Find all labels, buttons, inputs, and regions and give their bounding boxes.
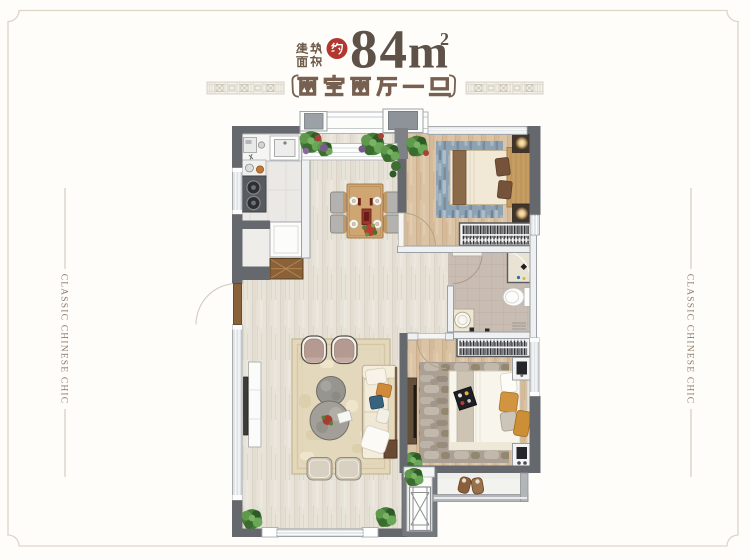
svg-text:84: 84 bbox=[350, 19, 409, 80]
svg-text:CLASSIC CHINESE CHIC: CLASSIC CHINESE CHIC bbox=[685, 274, 695, 405]
svg-text:2: 2 bbox=[440, 29, 449, 49]
svg-text:CLASSIC CHINESE CHIC: CLASSIC CHINESE CHIC bbox=[59, 274, 69, 405]
